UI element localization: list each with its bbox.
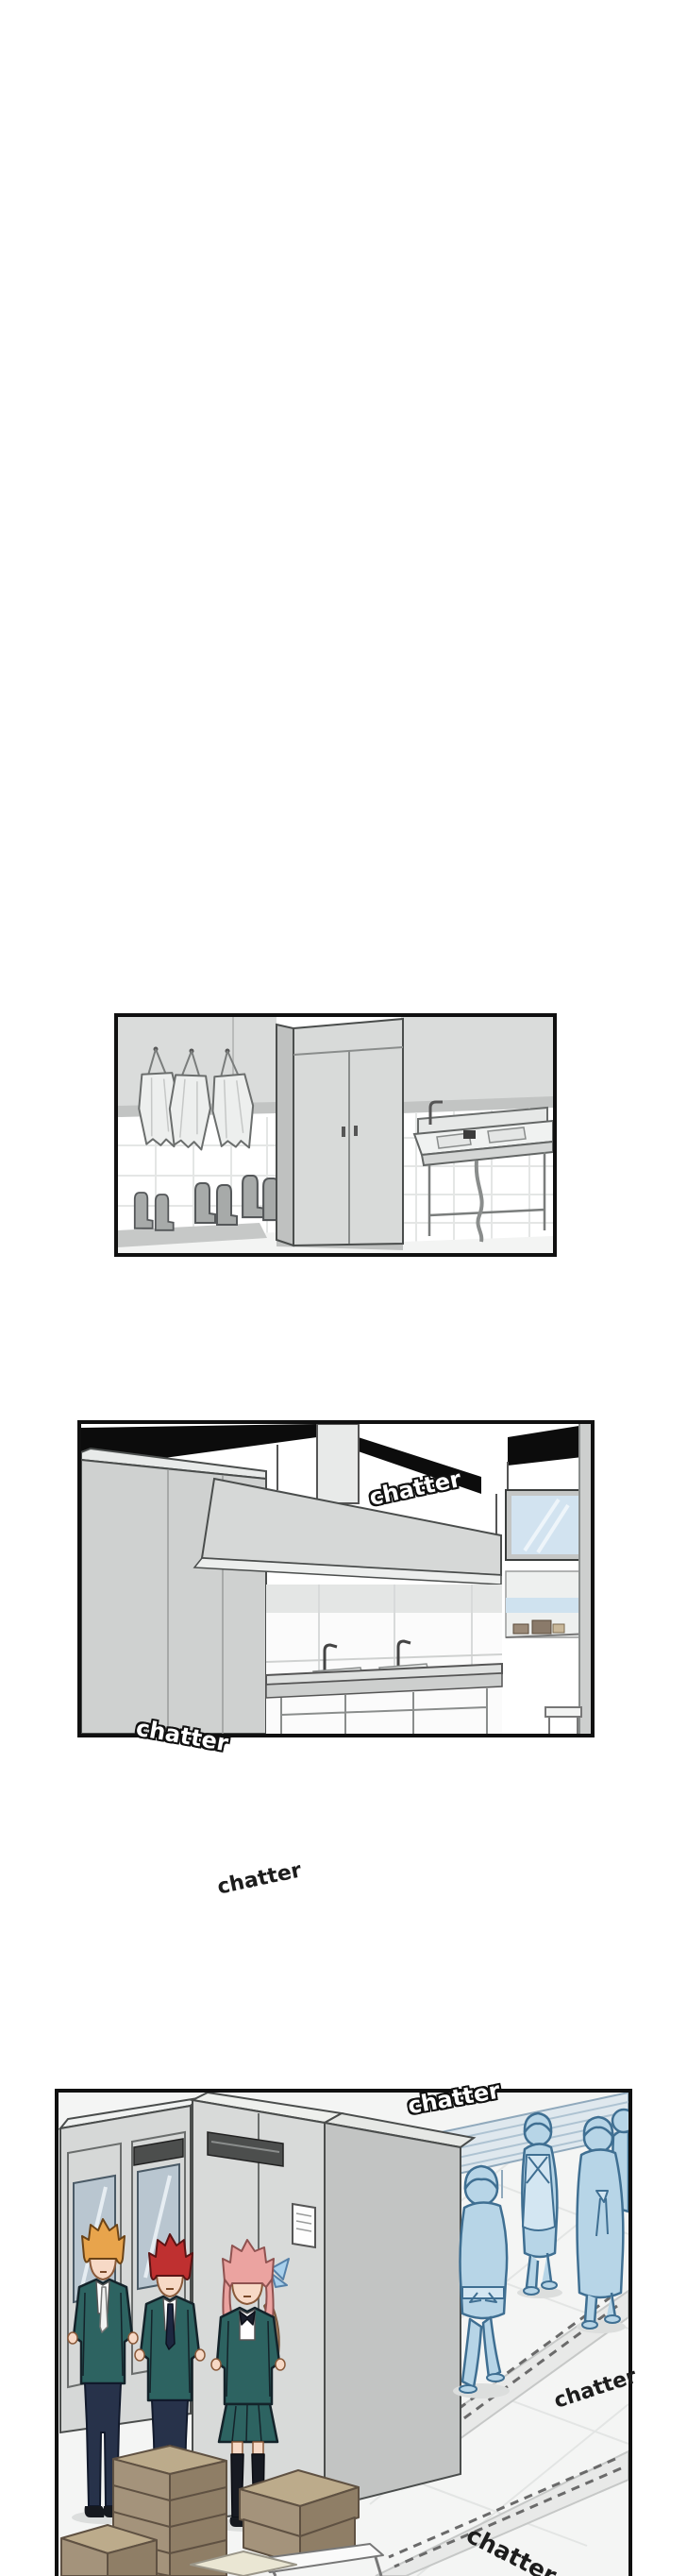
exhaust-hood (194, 1424, 501, 1585)
pass-through-window (506, 1462, 591, 1637)
pleated-skirt (219, 2404, 277, 2442)
sfx-chatter-3: chatter (215, 1858, 304, 1899)
students-staff-scene (59, 2093, 628, 2576)
panel-locker-room (114, 1013, 557, 1257)
kitchen-overview-scene (81, 1424, 591, 1734)
sink-unit (414, 1102, 553, 1242)
drain-hose (477, 1161, 482, 1242)
rubber-boots (135, 1176, 284, 1230)
panel-kitchen-students (55, 2089, 632, 2576)
locker-room-scene (118, 1017, 553, 1253)
right-wall (579, 1424, 591, 1734)
storage-cabinet (276, 1019, 403, 1246)
hood-duct (317, 1424, 359, 1503)
stool (545, 1707, 581, 1734)
control-panel (293, 2204, 315, 2247)
comic-page: chatter chatter chatter chatter chatter … (0, 0, 687, 2576)
panel-kitchen-overview (77, 1420, 595, 1737)
